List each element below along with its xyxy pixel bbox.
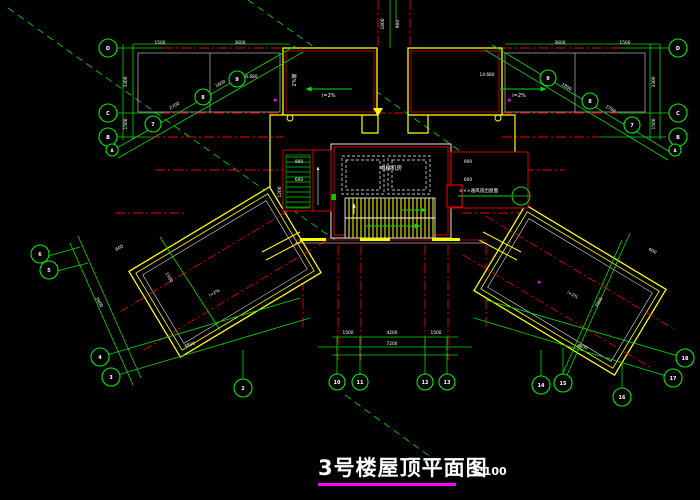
dimension-text: 3300 <box>651 76 657 87</box>
grid-bubble-label: 10 <box>334 380 341 386</box>
drawing-scale: 1:100 <box>472 465 507 478</box>
dimension-text: 1200 <box>277 186 283 197</box>
grid-bubble-label: 15 <box>560 381 567 387</box>
dimension-text: 1500 <box>651 118 657 129</box>
dimension-text: 3300 <box>123 76 129 87</box>
slope-label-top: 2%坡 <box>291 74 298 87</box>
dimension-text: 600 <box>647 247 657 256</box>
grid-bubble-label: 5 <box>47 268 51 274</box>
wing-lower-right <box>450 190 690 389</box>
grid-bubble-label: 6 <box>38 252 42 258</box>
right-rooms <box>447 152 528 208</box>
grid-bubble-label: 9 <box>546 76 550 82</box>
grid-bubble-label: 11 <box>357 380 364 386</box>
grid-bubble-label: 8 <box>588 99 592 105</box>
dimension-text: 3900 <box>93 296 104 309</box>
dimension-text: 600 <box>464 177 472 183</box>
drawing-title: 3号楼屋顶平面图 <box>318 456 488 480</box>
dimension-text: 900 <box>395 20 401 28</box>
grid-bubble-label: D <box>676 46 680 52</box>
dimension-text: 1500 <box>343 330 354 336</box>
dimension-text: 600 <box>295 177 303 183</box>
dimension-text: 900 <box>464 159 472 165</box>
dimension-text: 3600 <box>235 40 246 46</box>
grid-bubble-label: C <box>676 111 680 117</box>
vent-note: ×××通风道出屋面 <box>459 187 499 194</box>
grid-bubble-label: 14 <box>538 383 545 389</box>
drain-symbol <box>495 115 501 121</box>
core-machine-room <box>326 144 459 238</box>
dimension-text: 1800 <box>560 82 573 93</box>
drawing-title-block: 3号楼屋顶平面图1:100 <box>318 452 538 486</box>
cad-drawing-viewport[interactable]: 电梯机房 ×××通风道出屋面 i=2% i=2% 2%坡 15003600360… <box>0 0 700 500</box>
grid-bubble-label: B <box>676 135 680 141</box>
grid-bubble-label: 7 <box>151 122 155 128</box>
grid-bubble-label: 18 <box>682 356 689 362</box>
grid-bubble-label: 7 <box>630 123 634 129</box>
slope-label-left: i=2% <box>322 93 336 99</box>
dimension-text: 1800 <box>214 79 227 90</box>
dimension-text: 1800 <box>380 18 386 29</box>
drain-point <box>274 99 277 102</box>
grid-bubble-label: 3 <box>109 375 113 381</box>
dimension-text: 14.680 <box>479 72 494 78</box>
grid-bubble-label: 8 <box>201 95 205 101</box>
grid-bubble-label: 9 <box>235 77 239 83</box>
grid-bubble-label: B <box>106 135 110 141</box>
left-stair-rooms <box>283 150 331 211</box>
grid-bubble-label: 17 <box>670 376 677 382</box>
drain-point <box>508 99 511 102</box>
dimension-text: 1500 <box>155 40 166 46</box>
grid-bubble-label: 2 <box>241 386 245 392</box>
grid-bubble-label: 16 <box>619 395 626 401</box>
dimension-text: 1500 <box>431 330 442 336</box>
dimension-text: 1500 <box>620 40 631 46</box>
grid-bubble-label: 4 <box>98 355 102 361</box>
grid-bubble-label: D <box>106 46 110 52</box>
grid-bubble-label: 12 <box>422 380 429 386</box>
dimension-text: 900 <box>295 159 303 165</box>
dimension-text: 3600 <box>555 40 566 46</box>
drain-point <box>538 281 541 284</box>
grid-bubble-label: 13 <box>444 380 451 386</box>
title-underline <box>318 483 456 486</box>
grid-bubble-label: C <box>106 111 110 117</box>
dimension-text: 4200 <box>387 330 398 336</box>
drain-symbol <box>287 115 293 121</box>
dimension-text: 600 <box>114 243 124 252</box>
roof-plan-drawing: 电梯机房 ×××通风道出屋面 i=2% i=2% 2%坡 15003600360… <box>0 0 700 500</box>
dimension-text: 2700 <box>168 101 181 112</box>
room-label: 电梯机房 <box>380 164 403 172</box>
dimension-text: 7200 <box>387 341 398 347</box>
dimension-text: 1500 <box>123 118 129 129</box>
slope-label-right: i=2% <box>512 93 526 99</box>
